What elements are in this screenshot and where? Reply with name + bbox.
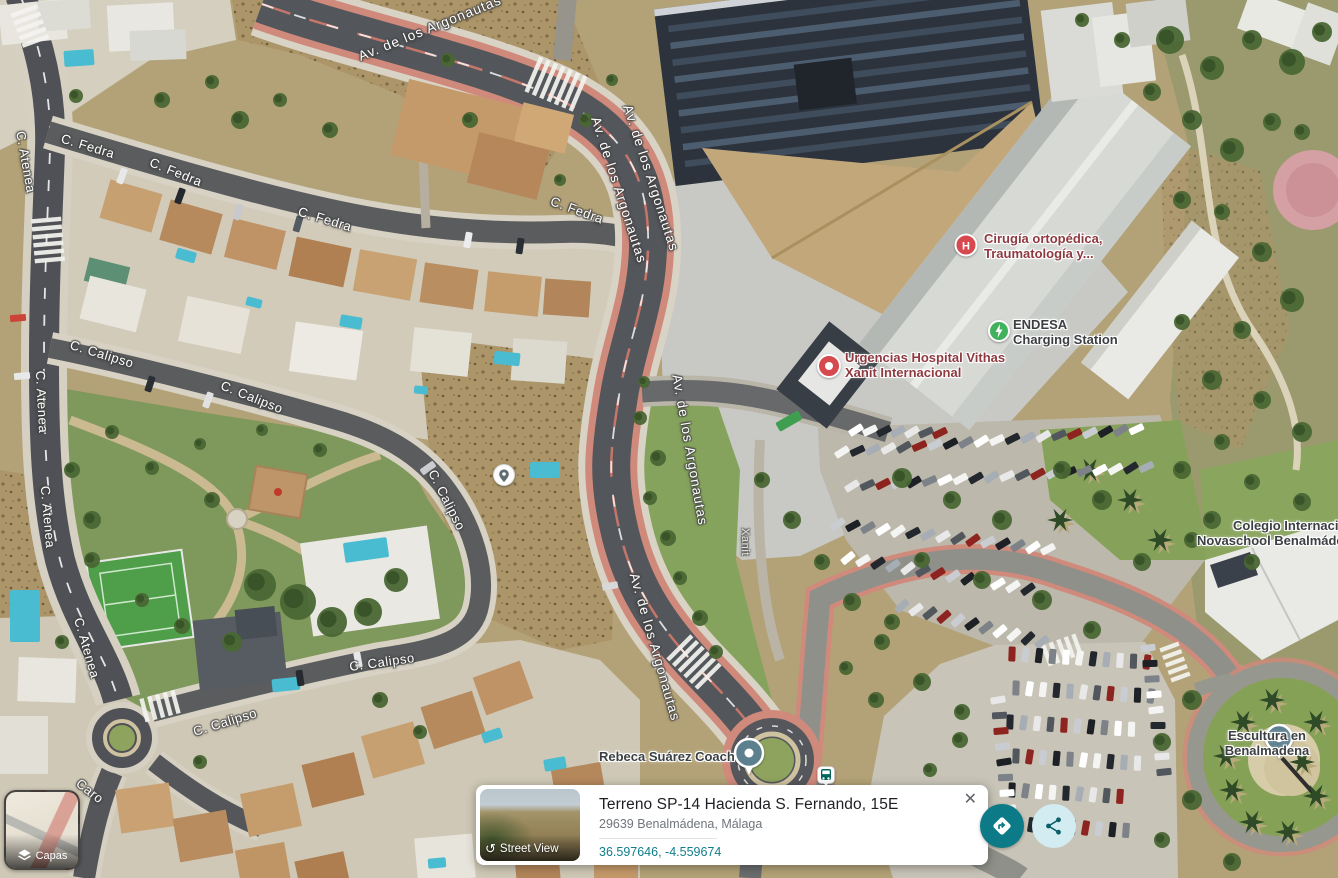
poi-endesa-line1: ENDESA	[1013, 317, 1118, 332]
poi-label-colegio[interactable]: Colegio Internacional Novaschool Benalmá…	[1233, 518, 1338, 549]
poi-escultura-line1: Escultura en	[1225, 728, 1310, 743]
poi-colegio-line2: Novaschool Benalmádena	[1197, 533, 1338, 548]
place-address: 29639 Benalmádena, Málaga	[599, 817, 988, 831]
poi-escultura-line2: Benalmadena	[1225, 743, 1310, 758]
poi-cirugia-line1: Cirugía ortopédica,	[984, 231, 1102, 246]
place-coordinates: 36.597646, -4.559674	[599, 845, 988, 859]
layers-control[interactable]: Capas	[4, 790, 80, 870]
layers-icon	[17, 848, 32, 863]
directions-button[interactable]	[980, 804, 1024, 848]
hospital-h-pin[interactable]: H	[953, 232, 979, 258]
street-view-label: Street View	[500, 843, 559, 855]
google-maps-viewport: C. Atenea C. Atenea C. Atenea C. Atenea …	[0, 0, 1338, 878]
poi-endesa-line2: Charging Station	[1013, 332, 1118, 347]
layers-label: Capas	[36, 850, 68, 862]
poi-label-urgencias[interactable]: Urgencias Hospital Vithas Xanit Internac…	[845, 350, 1005, 381]
poi-rebeca-line1: Rebeca Suárez Coach	[599, 749, 735, 764]
satellite-imagery	[0, 0, 1338, 878]
rebeca-pin[interactable]	[731, 735, 767, 779]
street-view-icon: ↺	[485, 841, 496, 857]
poi-colegio-line1: Colegio Internacional	[1233, 518, 1338, 533]
svg-text:H: H	[962, 241, 970, 253]
terreno-location-marker[interactable]	[492, 463, 516, 487]
close-card-button[interactable]: ✕	[962, 790, 979, 810]
urgencias-pin[interactable]	[816, 353, 843, 380]
poi-label-endesa[interactable]: ENDESA Charging Station	[1013, 317, 1118, 348]
place-title: Terreno SP-14 Hacienda S. Fernando, 15E	[599, 796, 988, 814]
poi-cirugia-line2: Traumatología y...	[984, 246, 1102, 261]
satellite-map[interactable]	[0, 0, 1338, 878]
ev-charging-pin[interactable]	[987, 319, 1011, 343]
poi-label-cirugia[interactable]: Cirugía ortopédica, Traumatología y...	[984, 231, 1102, 262]
poi-label-rebeca[interactable]: Rebeca Suárez Coach	[599, 749, 735, 764]
poi-label-escultura[interactable]: Escultura en Benalmadena	[1225, 728, 1310, 759]
poi-urgencias-line1: Urgencias Hospital Vithas	[845, 350, 1005, 365]
card-divider	[599, 838, 717, 839]
bus-stop-icon[interactable]	[817, 766, 836, 787]
poi-urgencias-line2: Xanit Internacional	[845, 365, 1005, 380]
place-info-card: ↺ Street View Terreno SP-14 Hacienda S. …	[476, 785, 988, 865]
share-button[interactable]	[1032, 804, 1076, 848]
street-view-thumbnail[interactable]: ↺ Street View	[480, 789, 580, 861]
